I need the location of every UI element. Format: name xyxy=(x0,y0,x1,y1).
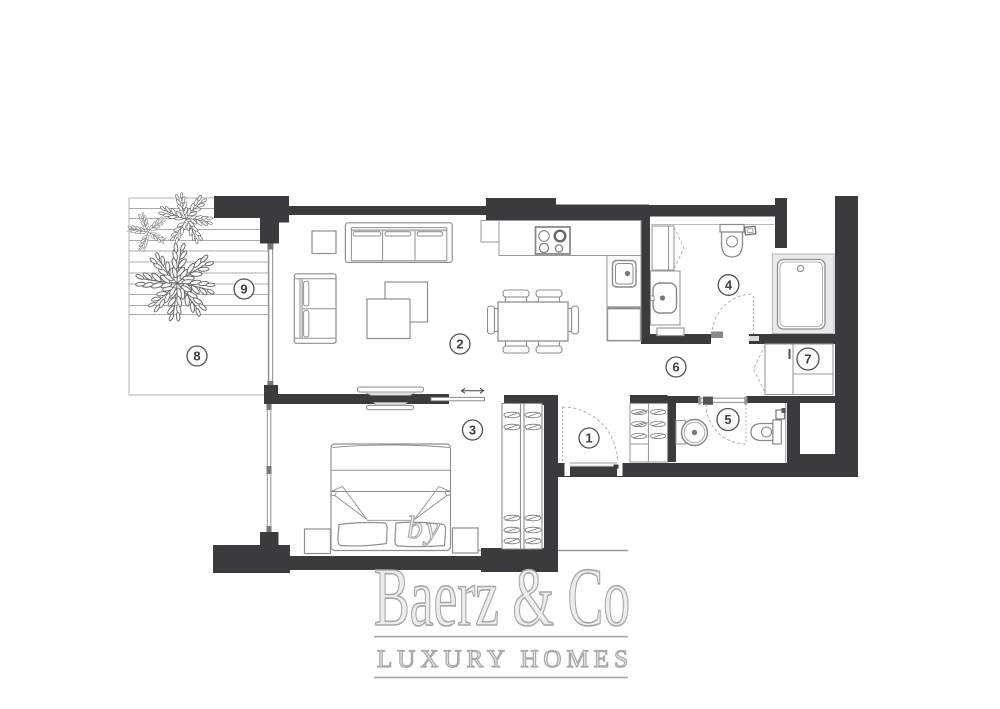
svg-text:7: 7 xyxy=(804,352,811,367)
svg-text:8: 8 xyxy=(193,349,200,364)
svg-text:2: 2 xyxy=(456,337,463,352)
svg-text:Baerz & Co: Baerz & Co xyxy=(374,551,630,644)
svg-text:LUXURY HOMES: LUXURY HOMES xyxy=(377,646,628,673)
svg-text:3: 3 xyxy=(469,423,476,438)
svg-text:1: 1 xyxy=(585,431,592,446)
svg-text:5: 5 xyxy=(724,412,731,427)
svg-text:6: 6 xyxy=(672,360,679,375)
svg-text:4: 4 xyxy=(725,278,733,293)
svg-text:9: 9 xyxy=(240,282,247,297)
svg-text:by: by xyxy=(407,509,442,545)
